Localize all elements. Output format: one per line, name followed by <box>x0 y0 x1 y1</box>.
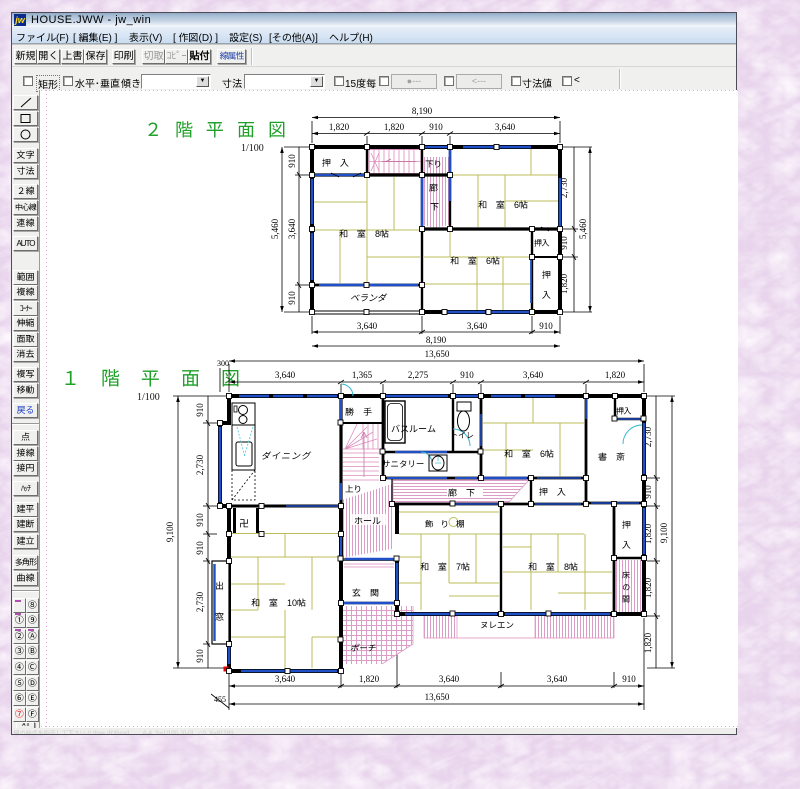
svg-text:455: 455 <box>214 695 226 704</box>
svg-text:ベランダ: ベランダ <box>350 293 388 303</box>
svg-text:の: の <box>622 583 630 592</box>
svg-text:9,100: 9,100 <box>659 522 669 543</box>
svg-text:勝 手: 勝 手 <box>345 407 372 417</box>
svg-text:910: 910 <box>195 513 205 527</box>
svg-text:１階平面図: １階平面図 <box>61 369 261 390</box>
svg-text:和 室 6帖: 和 室 6帖 <box>450 256 500 266</box>
svg-text:9,100: 9,100 <box>165 521 175 542</box>
svg-text:3,640: 3,640 <box>523 370 544 380</box>
svg-text:床: 床 <box>622 571 630 580</box>
svg-text:２階平面図: ２階平面図 <box>144 120 299 140</box>
svg-text:3,640: 3,640 <box>275 370 296 380</box>
svg-text:押: 押 <box>542 270 551 280</box>
svg-text:8,190: 8,190 <box>426 335 447 345</box>
svg-text:書 斎: 書 斎 <box>598 452 625 462</box>
svg-text:間: 間 <box>622 595 630 604</box>
svg-text:押: 押 <box>622 520 631 530</box>
svg-text:1,820: 1,820 <box>329 122 350 132</box>
svg-text:ホール: ホール <box>354 516 381 526</box>
svg-text:入: 入 <box>542 290 551 300</box>
svg-text:910: 910 <box>460 370 474 380</box>
svg-text:13,650: 13,650 <box>425 349 450 359</box>
svg-text:3,640: 3,640 <box>275 674 296 684</box>
svg-text:2,275: 2,275 <box>408 370 429 380</box>
svg-text:3,640: 3,640 <box>547 674 568 684</box>
svg-text:1/100: 1/100 <box>241 143 264 154</box>
svg-text:出: 出 <box>215 581 224 591</box>
svg-text:卍: 卍 <box>239 518 249 530</box>
svg-text:入: 入 <box>622 540 631 550</box>
svg-text:和 室 10帖: 和 室 10帖 <box>251 598 306 608</box>
svg-text:廊: 廊 <box>429 183 438 193</box>
svg-text:下り: 下り <box>425 159 442 169</box>
svg-text:300: 300 <box>217 359 229 368</box>
svg-text:和 室 7帖: 和 室 7帖 <box>420 562 470 572</box>
svg-text:910: 910 <box>195 541 205 555</box>
svg-text:3,640: 3,640 <box>467 321 488 331</box>
svg-text:和 室 8帖: 和 室 8帖 <box>528 562 578 572</box>
svg-text:910: 910 <box>195 403 205 417</box>
svg-text:2,730: 2,730 <box>195 591 205 612</box>
svg-text:和 室 8帖: 和 室 8帖 <box>339 229 389 239</box>
svg-text:910: 910 <box>429 122 443 132</box>
svg-text:3,640: 3,640 <box>439 674 460 684</box>
svg-text:3,640: 3,640 <box>287 218 297 239</box>
svg-text:押入: 押入 <box>534 239 549 248</box>
svg-text:1,820: 1,820 <box>359 674 380 684</box>
svg-text:1,365: 1,365 <box>352 370 373 380</box>
svg-text:トイレ: トイレ <box>450 431 474 440</box>
svg-text:910: 910 <box>622 674 636 684</box>
svg-text:飾り棚: 飾り棚 <box>425 519 472 529</box>
svg-text:910: 910 <box>195 649 205 663</box>
svg-text:玄 関: 玄 関 <box>352 588 379 598</box>
svg-text:押入: 押入 <box>616 407 631 416</box>
svg-text:和 室 6帖: 和 室 6帖 <box>504 449 554 459</box>
svg-text:13,650: 13,650 <box>425 692 450 702</box>
svg-text:上り: 上り <box>345 484 362 494</box>
svg-text:1,820: 1,820 <box>605 370 626 380</box>
svg-text:910: 910 <box>287 291 297 305</box>
svg-text:1,820: 1,820 <box>643 632 653 653</box>
svg-text:廊 下: 廊 下 <box>448 488 475 498</box>
svg-text:ポーチ: ポーチ <box>350 643 376 653</box>
svg-text:1/100: 1/100 <box>137 392 160 403</box>
svg-text:ヌレエン: ヌレエン <box>480 620 514 630</box>
svg-text:サニタリー: サニタリー <box>382 459 425 469</box>
svg-text:押 入: 押 入 <box>322 158 349 168</box>
svg-text:窓: 窓 <box>214 612 224 622</box>
svg-text:バスルーム: バスルーム <box>391 424 436 434</box>
svg-text:2,730: 2,730 <box>195 454 205 475</box>
svg-text:910: 910 <box>287 154 297 168</box>
svg-text:和 室 6帖: 和 室 6帖 <box>478 200 528 210</box>
svg-text:1,820: 1,820 <box>384 122 405 132</box>
svg-text:3,640: 3,640 <box>495 122 516 132</box>
svg-text:下: 下 <box>430 202 439 212</box>
svg-text:8,190: 8,190 <box>412 106 433 116</box>
svg-text:押 入: 押 入 <box>539 487 566 497</box>
svg-text:ダイニング: ダイニング <box>261 451 312 461</box>
svg-text:5,460: 5,460 <box>270 218 280 239</box>
svg-text:5,460: 5,460 <box>578 218 588 239</box>
svg-text:3,640: 3,640 <box>357 321 378 331</box>
svg-text:910: 910 <box>539 321 553 331</box>
